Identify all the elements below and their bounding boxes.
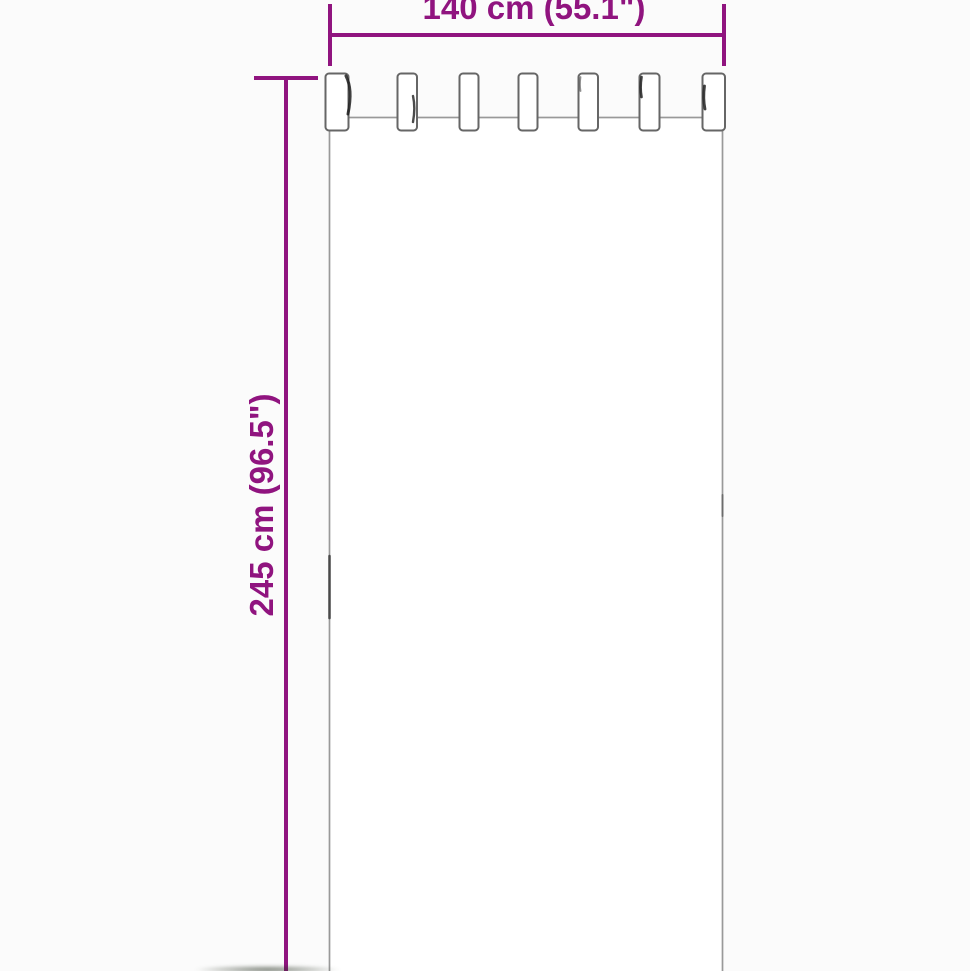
tab-fold-shadow [413,96,414,122]
curtain-tab [460,74,479,131]
tab-fold-shadow [641,77,642,97]
curtain-tab [703,74,726,131]
curtain-tab [640,74,660,131]
curtain-tab [326,74,349,131]
curtain-tab [579,74,599,131]
curtain-figure [0,0,970,971]
curtain-tab [519,74,538,131]
curtain-body [330,118,723,971]
tab-fold-shadow [704,86,705,109]
photo-edge-artifact [195,965,340,971]
diagram-canvas: 140 cm (55.1") 245 cm (96.5") [0,0,970,971]
tab-fold-shadow [580,77,581,91]
